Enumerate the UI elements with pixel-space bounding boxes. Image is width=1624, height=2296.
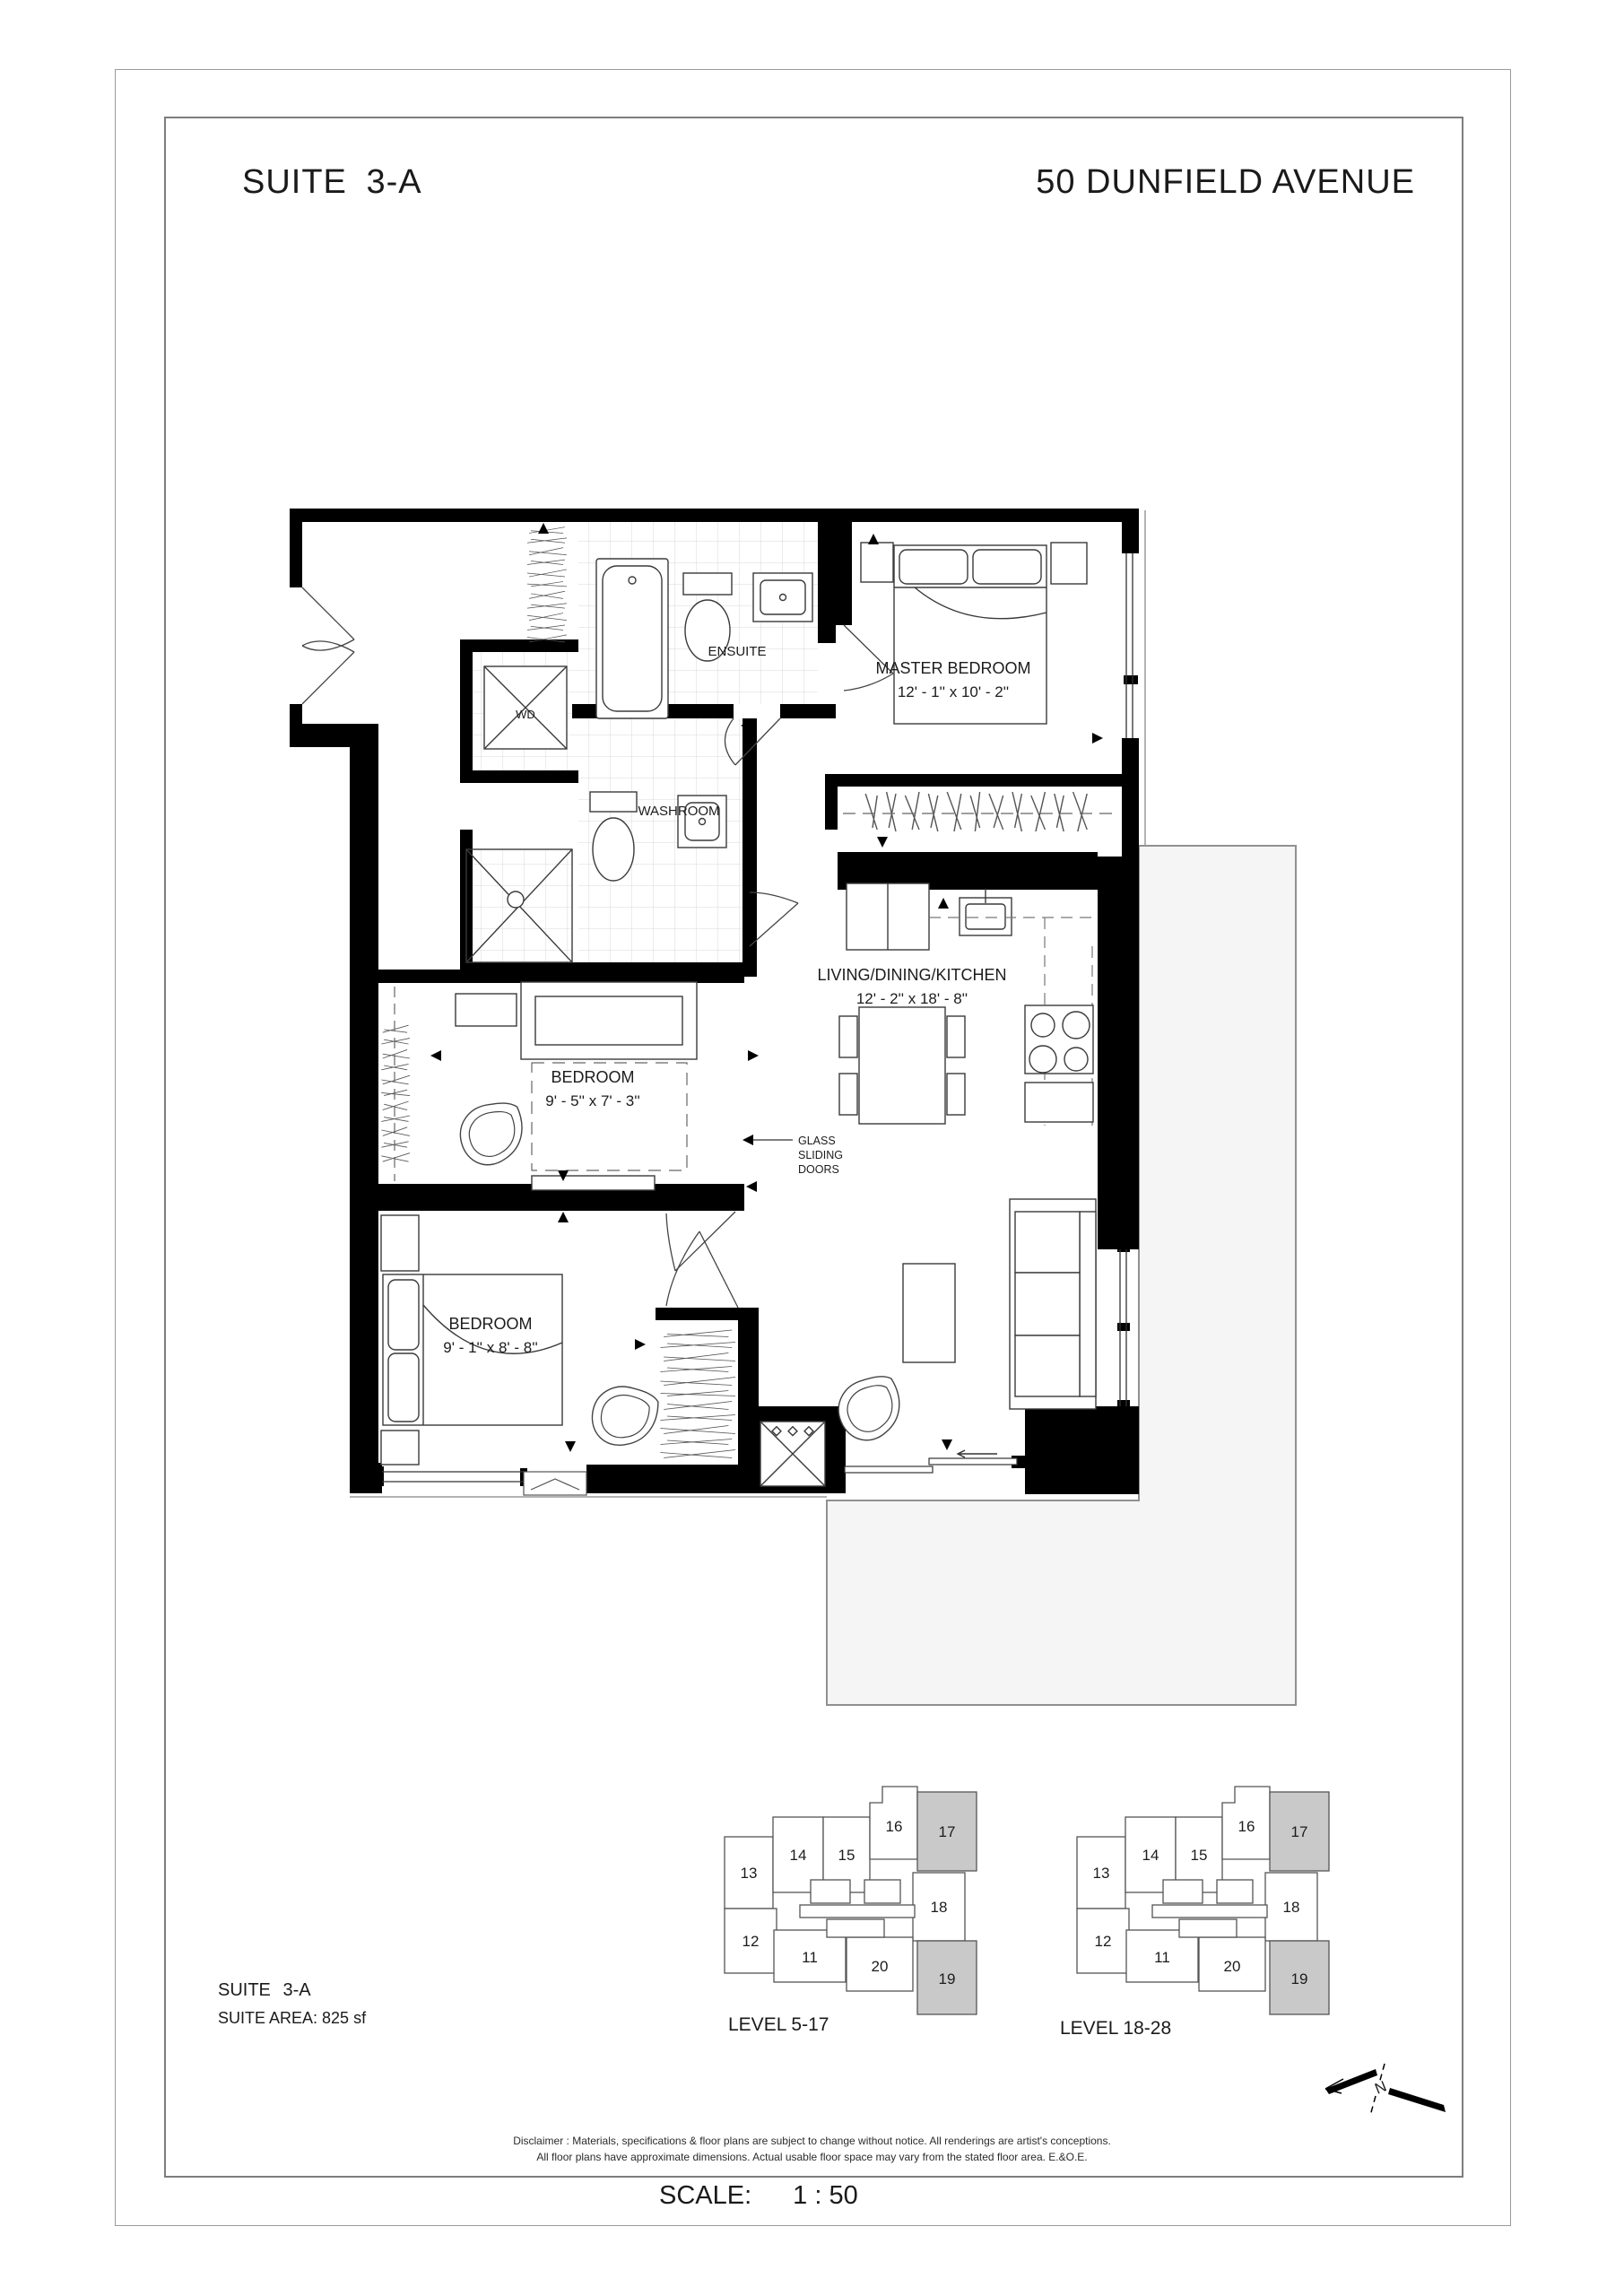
dining-set (839, 1007, 965, 1124)
unit-18: 18 (1283, 1899, 1300, 1916)
glass-label-2: SLIDING (798, 1149, 843, 1161)
disclaimer-line-2: All floor plans have approximate dimensi… (164, 2149, 1460, 2165)
unit-17: 17 (939, 1823, 956, 1840)
keyplan-level-18-28: 13 12 14 15 16 17 18 11 20 19 (1063, 1774, 1350, 2043)
glass-label-3: DOORS (798, 1163, 839, 1176)
chair-icon (947, 1016, 965, 1057)
keyplan-level-5-17: 13 12 14 15 16 17 18 11 20 19 (710, 1774, 997, 2043)
dresser-icon (532, 1176, 655, 1190)
washroom-label: WASHROOM (638, 804, 719, 819)
chair-icon (947, 1074, 965, 1115)
nightstand-icon (456, 994, 517, 1026)
entry-sink-cabinet (760, 1422, 825, 1486)
scale-label: SCALE: (659, 2181, 751, 2211)
cooktop-icon (1025, 1005, 1093, 1074)
cabinet-icon (1025, 1083, 1093, 1122)
ensuite-label: ENSUITE (708, 644, 766, 659)
north-arrow-icon: N (1318, 2058, 1462, 2121)
unit-12: 12 (1095, 1933, 1112, 1950)
unit-11: 11 (802, 1949, 818, 1966)
bed-icon (521, 982, 697, 1059)
scale-value: 1 : 50 (793, 2181, 858, 2211)
bedroom-low-label: BEDROOM (448, 1315, 532, 1333)
north-label: N (1372, 2077, 1389, 2097)
suite-title: SUITE 3-A (242, 163, 422, 202)
bedroom-mid-furniture (456, 982, 697, 1190)
living-label: LIVING/DINING/KITCHEN (817, 966, 1006, 984)
suite-info-name: SUITE 3-A (218, 1980, 311, 2001)
unit-17: 17 (1291, 1823, 1308, 1840)
unit-18: 18 (931, 1899, 948, 1916)
nightstand-icon (1051, 543, 1087, 584)
glass-label-1: GLASS (798, 1135, 836, 1147)
chair-icon (839, 1016, 857, 1057)
unit-16: 16 (1238, 1818, 1255, 1835)
sliding-door-terrace (845, 1458, 1017, 1473)
unit-15: 15 (838, 1847, 855, 1864)
exit-arrow (958, 1450, 997, 1457)
unit-19: 19 (939, 1970, 956, 1987)
toilet-icon (683, 573, 732, 595)
nightstand-icon (381, 1431, 419, 1465)
scale-row: SCALE: 1 : 50 (659, 2181, 858, 2211)
unit-13: 13 (1093, 1865, 1110, 1882)
armchair-icon (586, 1380, 662, 1453)
chair-icon (839, 1074, 857, 1115)
coffee-table-icon (903, 1264, 955, 1362)
bedroom-mid-dims: 9' - 5'' x 7' - 3'' (545, 1092, 639, 1109)
armchair-icon (456, 1100, 528, 1169)
dining-table-icon (859, 1007, 945, 1124)
building-address: 50 DUNFIELD AVENUE (1036, 163, 1415, 202)
unit-15: 15 (1191, 1847, 1208, 1864)
nightstand-icon (861, 543, 893, 582)
living-dims: 12' - 2'' x 18' - 8'' (856, 990, 968, 1007)
master-bedroom-label: MASTER BEDROOM (875, 659, 1030, 677)
unit-11: 11 (1154, 1949, 1170, 1966)
nightstand-icon (381, 1215, 419, 1271)
unit-19: 19 (1291, 1970, 1308, 1987)
suite-info-area: SUITE AREA: 825 sf (218, 2009, 366, 2028)
toilet-icon (590, 792, 637, 812)
sofa-icon (1010, 1199, 1096, 1409)
floorplan-drawing: GLASS SLIDING DOORS ENSUITE WASHROOM WD … (287, 498, 1314, 1722)
bedroom-low-dims: 9' - 1'' x 8' - 8'' (443, 1339, 537, 1356)
floorplan-page: SUITE 3-A 50 DUNFIELD AVENUE (0, 0, 1624, 2296)
disclaimer: Disclaimer : Materials, specifications &… (164, 2133, 1460, 2165)
keyplan-right-label: LEVEL 18-28 (1060, 2018, 1171, 2039)
keyplan-left-label: LEVEL 5-17 (728, 2014, 829, 2036)
kitchen-sink-icon (960, 889, 1012, 935)
unit-14: 14 (1142, 1847, 1159, 1864)
unit-20: 20 (1224, 1958, 1241, 1975)
bay-window (524, 1472, 586, 1495)
unit-16: 16 (886, 1818, 903, 1835)
glass-sliding-doors-annotation: GLASS SLIDING DOORS (743, 1135, 843, 1176)
unit-20: 20 (872, 1958, 889, 1975)
bedroom-mid-label: BEDROOM (551, 1068, 634, 1086)
master-bedroom-dims: 12' - 1'' x 10' - 2'' (898, 683, 1009, 700)
unit-14: 14 (790, 1847, 807, 1864)
wd-label: WD (516, 708, 535, 721)
disclaimer-line-1: Disclaimer : Materials, specifications &… (164, 2133, 1460, 2149)
unit-13: 13 (741, 1865, 758, 1882)
unit-12: 12 (743, 1933, 760, 1950)
